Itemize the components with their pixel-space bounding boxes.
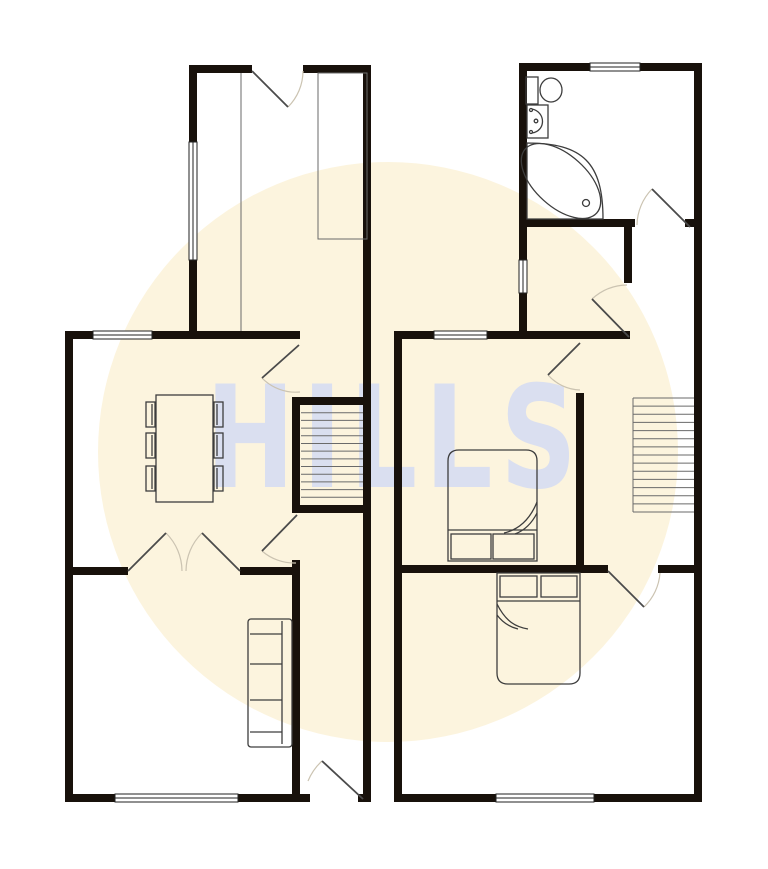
- dining-chair: [214, 402, 223, 427]
- bed-fold: [497, 615, 518, 629]
- bed: [497, 573, 580, 684]
- first-floor-plan-wall: [519, 63, 590, 71]
- first-floor-plan-door-arc: [644, 573, 660, 607]
- ground-floor-plan-wall: [189, 65, 197, 142]
- ground-floor-plan-door-leaf: [262, 515, 297, 551]
- first-floor-plan-wall: [402, 565, 608, 573]
- bed-fold: [515, 513, 537, 534]
- first-floor-plan-door-leaf: [548, 343, 580, 375]
- first-floor-plan-wall: [640, 63, 702, 71]
- ground-floor-plan-wall: [292, 560, 300, 802]
- toilet-cistern: [526, 77, 538, 104]
- ground-floor-plan-door-arc: [186, 533, 202, 571]
- first-floor-plan-door-arc: [637, 189, 652, 225]
- first-floor-plan-door-arc: [548, 375, 580, 390]
- first-floor-plan-wall: [576, 393, 584, 573]
- bath: [527, 143, 603, 219]
- dining-table: [156, 395, 213, 502]
- first-floor-plan-door-leaf: [652, 189, 690, 227]
- first-floor-plan-wall: [694, 63, 702, 802]
- sink-tap: [530, 131, 533, 134]
- ground-floor-plan-wall: [240, 567, 297, 575]
- ground-floor-plan-wall: [189, 65, 252, 73]
- sink-tap: [530, 109, 533, 112]
- sofa: [248, 619, 292, 747]
- sink-drain: [534, 119, 538, 123]
- ground-floor-plan-wall: [300, 505, 367, 513]
- ground-floor-plan-door-arc: [288, 71, 303, 107]
- ground-floor-plan-door-leaf: [202, 533, 240, 571]
- toilet-bowl: [540, 78, 562, 102]
- ground-floor-plan-wall: [189, 260, 197, 339]
- ground-floor-plan-wall: [292, 397, 300, 513]
- first-floor-plan-door-leaf: [608, 571, 644, 607]
- ground-floor-plan-wall: [65, 567, 128, 575]
- bed-pillow: [500, 576, 537, 597]
- dining-chair: [146, 402, 155, 427]
- floorplan-svg: [0, 0, 768, 869]
- ground-floor-plan-door-leaf: [128, 533, 166, 571]
- ground-floor-plan-door-arc: [262, 551, 296, 563]
- first-floor-plan-wall: [394, 794, 496, 802]
- ground-floor-plan-wall: [300, 397, 367, 405]
- first-floor-plan-wall: [658, 565, 702, 573]
- first-floor-plan-wall: [594, 794, 702, 802]
- ground-floor-plan-wall: [303, 65, 371, 73]
- bed-fold: [497, 604, 528, 629]
- floorplan-page: HILLS: [0, 0, 768, 869]
- first-floor-plan-wall: [487, 331, 630, 339]
- bed-pillow: [541, 576, 577, 597]
- ground-floor-plan-wall: [65, 794, 115, 802]
- first-floor-plan-door-arc: [592, 285, 627, 299]
- bed-pillow: [451, 534, 491, 559]
- ground-floor-plan-door-leaf: [252, 71, 288, 107]
- dining-chair: [146, 466, 155, 491]
- ground-floor-plan-door-leaf: [322, 761, 363, 799]
- dining-chair: [214, 433, 223, 458]
- ground-floor-plan-wall: [152, 331, 300, 339]
- ground-floor-plan-door-arc: [308, 761, 322, 781]
- first-floor-plan-wall: [624, 227, 632, 283]
- ground-floor-plan-door-arc: [166, 533, 182, 571]
- ground-floor-plan-door-leaf: [262, 345, 299, 378]
- ground-floor-plan-wall: [65, 331, 73, 802]
- dining-chair: [214, 466, 223, 491]
- bed-pillow: [493, 534, 534, 559]
- ground-floor-plan-door-arc: [262, 378, 300, 392]
- first-floor-plan-wall: [394, 331, 402, 802]
- bath-drain: [583, 200, 590, 207]
- dining-chair: [146, 433, 155, 458]
- bed-fold: [504, 502, 537, 533]
- kitchen-counter: [318, 73, 367, 239]
- first-floor-plan-wall: [519, 219, 635, 227]
